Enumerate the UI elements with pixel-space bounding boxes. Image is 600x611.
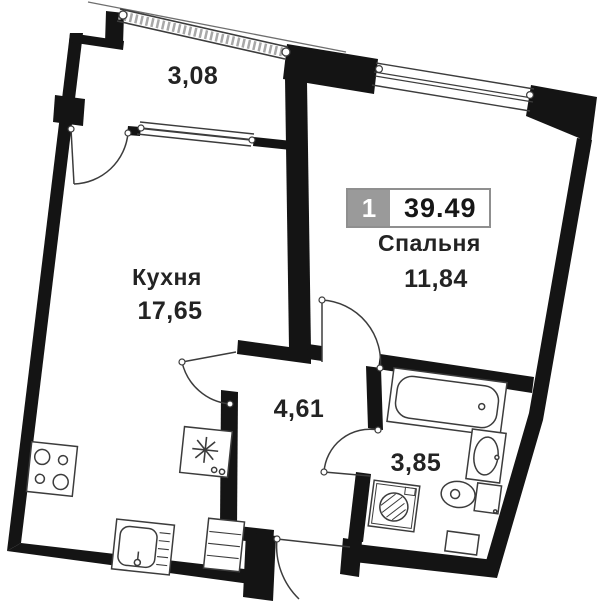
balcony-door bbox=[68, 126, 131, 184]
glazing-hatch bbox=[119, 15, 287, 53]
wall-pier-balcony bbox=[53, 95, 85, 126]
bathroom-area-label: 3,85 bbox=[366, 449, 466, 478]
bedroom-window bbox=[372, 63, 534, 111]
total-area-cell: 39.49 bbox=[392, 190, 489, 226]
washing-machine-icon bbox=[368, 480, 420, 532]
stove-icon bbox=[27, 442, 78, 497]
toilet-icon bbox=[439, 478, 501, 513]
shelf-icon bbox=[445, 531, 479, 555]
bedroom-area-label: 11,84 bbox=[386, 265, 486, 294]
wall-bathroom-west-upper bbox=[366, 366, 383, 430]
wall-bedroom-ne bbox=[526, 85, 597, 143]
hallway-area-label: 4,61 bbox=[249, 395, 349, 424]
plan-number-cell: 1 bbox=[348, 190, 392, 226]
balcony-area-label: 3,08 bbox=[143, 62, 243, 91]
entry-door bbox=[274, 536, 350, 599]
wall-right bbox=[484, 138, 592, 578]
floor-plan: 3,08 Кухня 17,65 Спальня 11,84 4,61 3,85… bbox=[0, 0, 600, 611]
bedroom-name-label: Спальня bbox=[378, 230, 478, 257]
wall-bedroom-west bbox=[285, 78, 311, 351]
wall-vestibule-jamb bbox=[243, 532, 276, 601]
kitchen-name-label: Кухня bbox=[117, 264, 217, 291]
wall-entry-jamb bbox=[340, 538, 362, 577]
kitchen-sink-icon bbox=[112, 519, 175, 575]
cabinet-icon bbox=[203, 518, 244, 571]
total-area-badge: 1 39.49 bbox=[346, 188, 491, 228]
wall-bedroom-south-stub bbox=[308, 344, 322, 361]
roof-overhang-line bbox=[88, 2, 346, 52]
fridge-icon bbox=[180, 427, 233, 478]
floor-plan-drawing bbox=[0, 0, 600, 611]
kitchen-area-label: 17,65 bbox=[120, 297, 220, 326]
washbasin-icon bbox=[466, 429, 506, 483]
bedroom-door bbox=[319, 297, 383, 371]
wall-bathroom-west-lower bbox=[348, 472, 371, 542]
walls bbox=[7, 11, 597, 601]
kitchen-balcony-window bbox=[137, 122, 255, 146]
